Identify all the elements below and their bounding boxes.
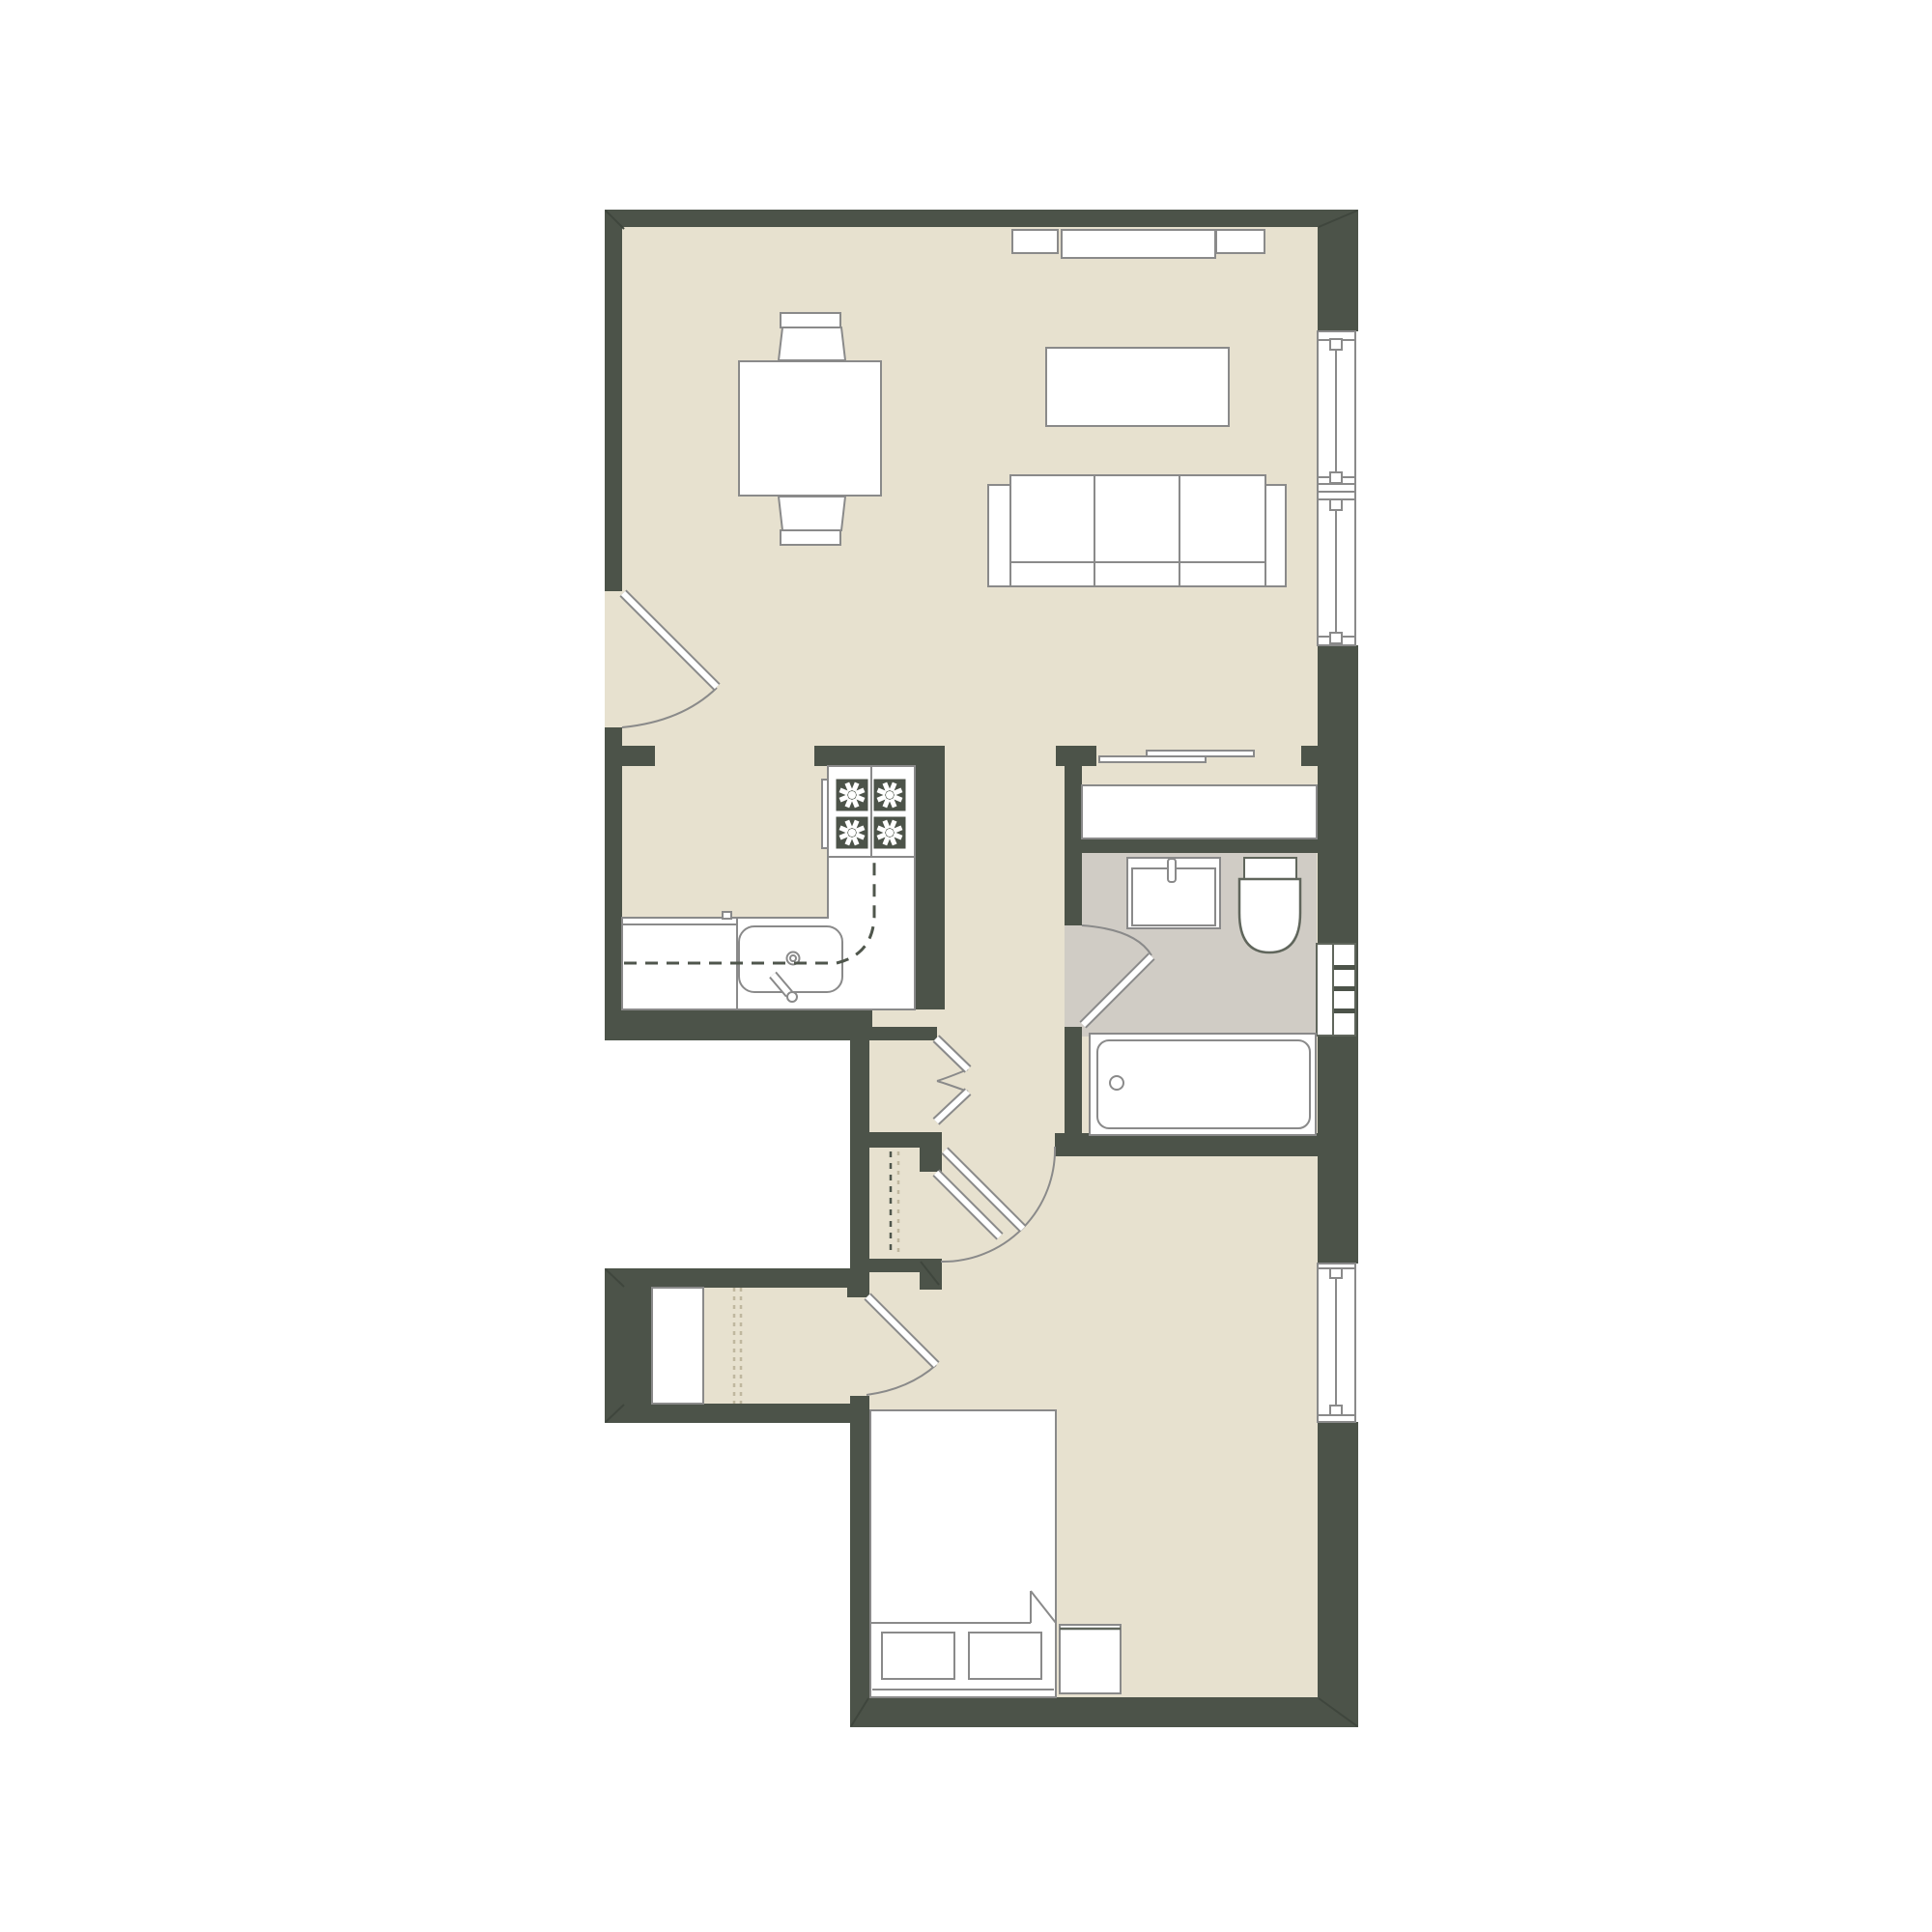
stove-burner-1 [837,780,868,811]
bathtub-inner [1097,1040,1310,1128]
wall-hall-left [850,1040,869,1272]
radiator-gap-1 [1334,965,1355,970]
hall-shelf-lower [1099,756,1206,762]
wall-kitchen-bottom [605,1009,872,1040]
stove-burner-2 [874,780,906,811]
wall-bedroom-left [850,1396,869,1697]
wall-bottom [850,1697,1358,1727]
kitchen-faucet-knob [787,992,797,1002]
stove-burner-3 [837,817,868,849]
toilet-bowl [1239,879,1300,952]
coffee-table [1046,348,1229,426]
sideboard-right [1216,230,1264,253]
sideboard-middle [1062,230,1215,258]
closet-shelf [652,1288,703,1404]
wall-kitchen-right [915,766,945,1009]
sofa-body [1010,475,1265,586]
toilet-tank [1244,858,1296,879]
dining-table [739,361,881,496]
sofa-arm-left [988,485,1010,586]
wall-under-cabinet [1065,838,1319,853]
wall-closet-left [605,1288,652,1404]
wall-bath-bottom [1055,1133,1318,1156]
bedroom-window-stop-2 [1330,1406,1342,1415]
stove-handle [822,780,828,848]
wall-bath-stub [1056,746,1096,766]
wall-right-upper [1318,227,1358,331]
wall-top [605,210,1358,227]
floor-plan-page [0,0,1932,1932]
wall-niche-top [867,1027,937,1040]
bedroom-window-stop-1 [1330,1268,1342,1278]
counter-knob [723,912,731,919]
bathroom-door-floor [1065,925,1082,1027]
living-window-stop-3 [1330,499,1342,510]
radiator-gap-2 [1334,986,1355,991]
sofa-arm-right [1265,485,1286,586]
wall-closet-top [605,1268,869,1288]
dining-chair-south-seat [779,497,845,530]
wall-pier-right [1301,746,1318,766]
bathroom-faucet [1168,859,1176,882]
dining-chair-north-back [781,313,840,327]
nightstand [1060,1625,1121,1693]
wall-niche-pier [920,1132,942,1172]
living-window-stop-2 [1330,472,1342,483]
wall-pier-left [622,746,655,766]
dining-chair-north-seat [779,327,845,360]
wall-bath-left-lower [1065,1027,1082,1133]
wall-left-mid [605,727,622,1040]
wall-left-upper [605,227,622,591]
floor-plan-svg [0,0,1932,1932]
hall-cabinet [1082,785,1317,838]
living-window-stop-1 [1330,339,1342,350]
bed-pillow-left [882,1633,954,1679]
wall-closet-pier [847,1288,869,1297]
stove-burner-4 [874,817,906,849]
wall-kitchen-top [814,746,945,766]
bed-pillow-right [969,1633,1041,1679]
radiator-gap-3 [1334,1009,1355,1013]
living-window-stop-4 [1330,633,1342,643]
wall-closet-bottom [605,1404,869,1423]
entry-threshold-floor [605,591,622,727]
sideboard-left [1012,230,1058,253]
dining-chair-south-back [781,530,840,545]
wall-right-lower [1318,1422,1358,1697]
